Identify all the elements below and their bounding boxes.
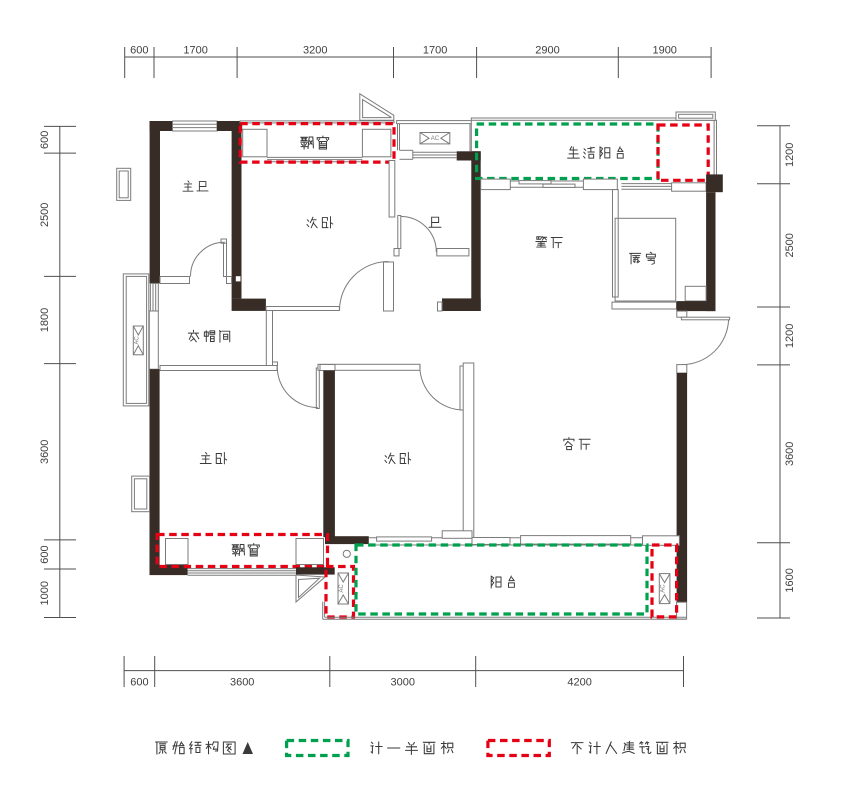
- svg-text:600: 600: [39, 131, 51, 149]
- svg-text:2900: 2900: [535, 45, 559, 57]
- svg-text:600: 600: [130, 677, 148, 689]
- svg-text:AC: AC: [661, 584, 667, 593]
- svg-text:2500: 2500: [39, 203, 51, 227]
- svg-text:3200: 3200: [303, 45, 327, 57]
- svg-text:3600: 3600: [230, 677, 254, 689]
- svg-text:AC: AC: [134, 336, 140, 345]
- svg-text:1700: 1700: [423, 45, 447, 57]
- svg-text:3600: 3600: [39, 440, 51, 464]
- svg-text:1700: 1700: [183, 45, 207, 57]
- svg-text:3000: 3000: [391, 677, 415, 689]
- svg-text:2500: 2500: [784, 233, 796, 257]
- svg-text:4200: 4200: [567, 677, 591, 689]
- svg-text:1200: 1200: [784, 143, 796, 167]
- svg-text:1800: 1800: [39, 308, 51, 332]
- svg-text:1900: 1900: [652, 45, 676, 57]
- svg-text:600: 600: [130, 45, 148, 57]
- svg-text:600: 600: [39, 545, 51, 563]
- svg-text:1200: 1200: [784, 324, 796, 348]
- svg-text:3600: 3600: [784, 442, 796, 466]
- svg-text:AC: AC: [431, 136, 440, 142]
- svg-text:1600: 1600: [784, 568, 796, 592]
- svg-text:1000: 1000: [39, 581, 51, 605]
- svg-text:AC: AC: [339, 584, 345, 593]
